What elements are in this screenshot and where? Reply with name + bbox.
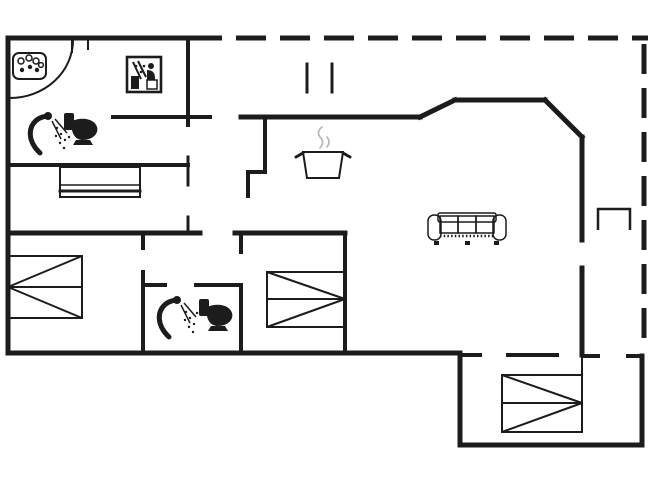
bubble — [33, 58, 39, 64]
bed-diagonal — [267, 299, 345, 327]
double-bed-bottom-right — [502, 375, 582, 432]
sofa-arm — [428, 215, 441, 240]
spray-drop — [60, 133, 62, 135]
spray-drop — [59, 142, 61, 144]
bubble — [20, 68, 24, 72]
sofa-back — [438, 213, 496, 222]
spray-drop — [192, 331, 194, 333]
bubble — [26, 55, 32, 61]
pot-handle — [296, 153, 303, 157]
spray-drop — [63, 147, 65, 149]
sauna-icon — [127, 57, 161, 92]
sofa-arm — [493, 215, 506, 240]
terrace-door-marks — [307, 64, 332, 92]
shower-head — [173, 296, 181, 304]
kitchen-partition — [248, 117, 265, 196]
interior-walls-bedrooms — [8, 233, 345, 353]
spray-drop — [196, 312, 198, 314]
shower-arm — [30, 116, 48, 153]
interior-walls-top-left — [8, 38, 210, 232]
spray-drop — [56, 127, 58, 129]
sofa-foot — [434, 241, 439, 245]
pot-body — [303, 152, 343, 178]
sofa-cushion — [458, 216, 476, 233]
spray-drop — [64, 139, 66, 141]
living-room-walls — [241, 100, 582, 375]
sofa-foot — [494, 241, 499, 245]
steam-line — [318, 127, 322, 148]
sofa-cushion — [476, 216, 494, 233]
sauna-stove — [131, 76, 139, 89]
bubble — [39, 63, 44, 68]
wall-segment-diagonal — [420, 100, 455, 117]
pot-handle — [343, 153, 350, 157]
toilet-base — [73, 140, 93, 145]
bubble — [35, 68, 39, 72]
wall-segment-diagonal — [545, 100, 582, 137]
toilet-icon — [64, 113, 97, 145]
spray-drop — [189, 317, 191, 319]
spray-drop — [184, 319, 186, 321]
spray-drop — [68, 136, 70, 138]
door-swing-arc — [10, 40, 73, 98]
toilet-bowl — [72, 119, 97, 140]
steam-line — [327, 137, 329, 147]
floor-plan-canvas — [0, 0, 650, 487]
sauna-person-head — [148, 63, 154, 69]
sauna-drop — [143, 65, 146, 68]
cooking-pot-icon — [296, 127, 350, 178]
shower-arm — [159, 300, 177, 337]
sofa-cushion — [440, 216, 458, 233]
toilet-bowl — [207, 305, 232, 326]
bed-diagonal — [502, 375, 582, 403]
sauna-drop — [135, 65, 138, 68]
sofa-icon — [428, 213, 506, 245]
sauna-bench — [147, 80, 157, 89]
spray-drop — [188, 326, 190, 328]
spray-drop — [55, 135, 57, 137]
toilet-icon-2 — [199, 299, 232, 331]
bed-diagonal — [502, 403, 582, 432]
bubble — [18, 58, 24, 64]
double-bed-middle — [267, 272, 345, 327]
shower-head — [44, 112, 52, 120]
floor-plan-drawing — [0, 0, 650, 487]
sauna-drop — [140, 71, 143, 74]
shower-icon-2 — [159, 296, 198, 337]
spray-drop — [185, 311, 187, 313]
wardrobe — [60, 167, 140, 197]
bubble — [28, 65, 32, 69]
sofa-foot — [465, 241, 470, 245]
fireplace-niche — [598, 209, 630, 230]
double-bed-left — [8, 256, 82, 318]
bed-diagonal — [8, 287, 82, 318]
toilet-base — [208, 326, 228, 331]
bed-diagonal — [8, 256, 82, 287]
bed-diagonal — [267, 272, 345, 299]
spray-drop — [193, 323, 195, 325]
whirlpool-icon — [13, 53, 46, 79]
